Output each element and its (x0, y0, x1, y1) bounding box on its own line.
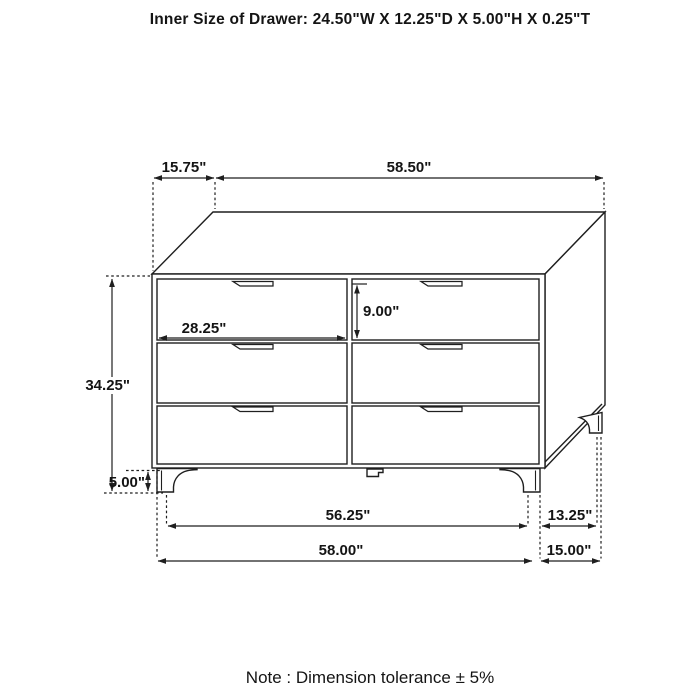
dim-label: 56.25" (326, 507, 371, 524)
dim-label: 28.25" (182, 320, 227, 337)
back-center-leg (367, 469, 383, 477)
dim-label: 58.00" (319, 542, 364, 559)
dim-label: 5.00" (109, 474, 145, 491)
dim-label: 15.75" (162, 159, 207, 176)
tolerance-note: Note : Dimension tolerance ± 5% (40, 668, 700, 688)
drawer-handle-icon (233, 282, 273, 287)
dim-base-width: 58.00" (158, 542, 532, 561)
front-left-leg (157, 469, 197, 493)
diagram-canvas: Inner Size of Drawer: 24.50"W X 12.25"D … (0, 0, 700, 700)
dim-base-depth: 15.00" (541, 542, 600, 561)
drawer-middle-right (352, 343, 539, 403)
dresser-dimension-drawing: 15.75" 58.50" 34.25" 5.00" 28.25" (0, 0, 700, 700)
dim-front-leg-span: 56.25" (168, 507, 527, 526)
dim-overall-height: 34.25" (85, 276, 150, 491)
drawer-middle-left (157, 343, 347, 403)
drawer-handle-icon (421, 282, 462, 287)
dim-leg-height: 5.00" (104, 471, 163, 494)
drawer-bottom-left (157, 406, 347, 464)
dim-label: 15.00" (547, 542, 592, 559)
drawer-handle-icon (233, 407, 273, 412)
dim-label: 13.25" (548, 507, 593, 524)
dresser-top-surface (152, 212, 605, 280)
dresser-front-face (152, 274, 545, 468)
front-right-leg (500, 469, 540, 493)
drawer-handle-icon (421, 407, 462, 412)
drawer-handle-icon (233, 345, 273, 350)
top-surface-face (152, 212, 605, 274)
drawer-bottom-right (352, 406, 539, 464)
dim-side-leg-span: 13.25" (542, 507, 596, 526)
drawer-handle-icon (421, 345, 462, 350)
dim-label: 9.00" (363, 303, 399, 320)
dim-label: 34.25" (85, 377, 130, 394)
dim-label: 58.50" (387, 159, 432, 176)
dim-top-width: 58.50" (216, 159, 604, 209)
